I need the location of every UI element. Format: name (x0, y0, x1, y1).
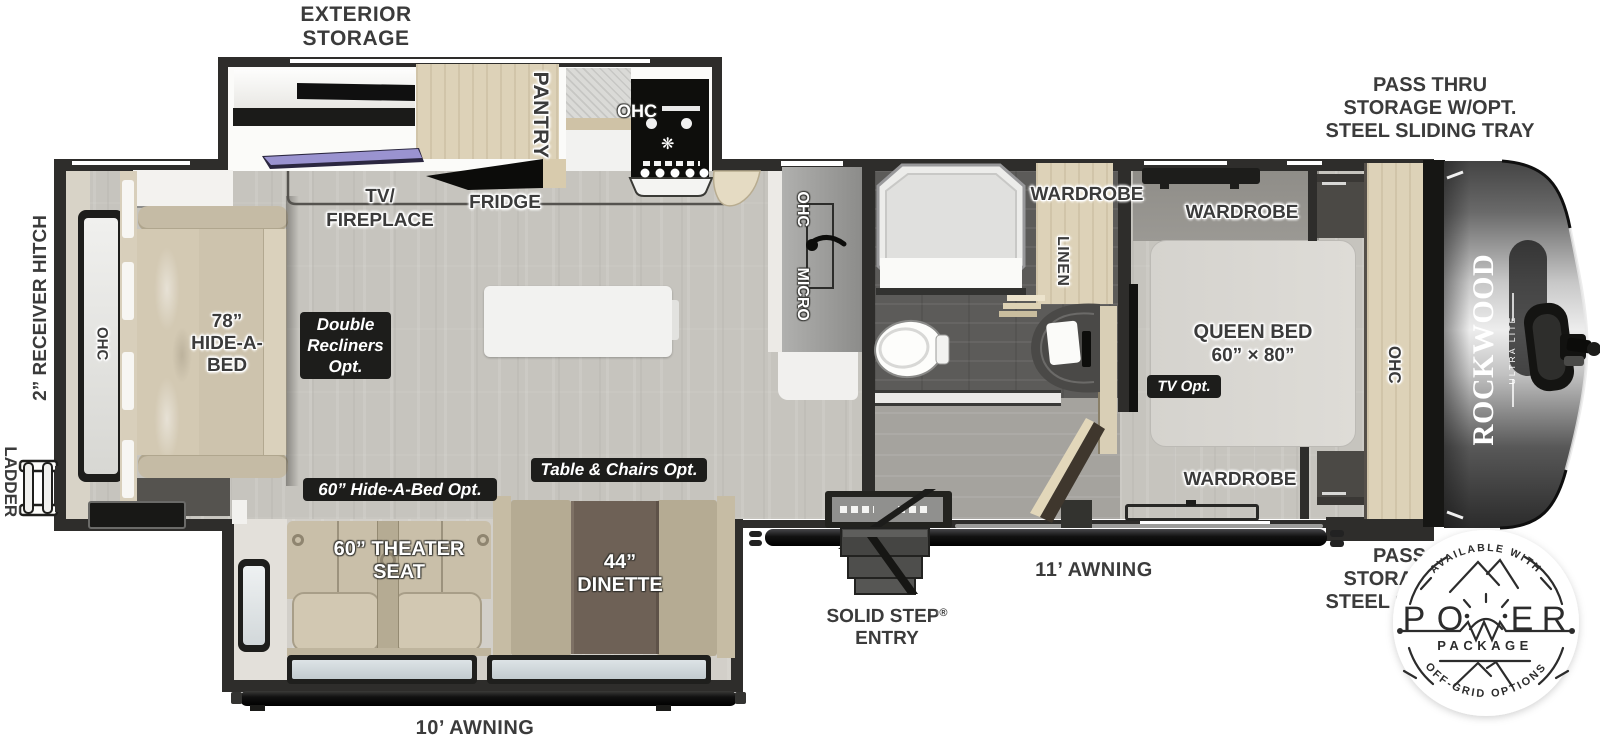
svg-text:ROCKWOOD: ROCKWOOD (1467, 255, 1500, 445)
svg-text:E: E (1511, 600, 1534, 638)
svg-text:O: O (1437, 600, 1463, 638)
svg-text:ULTRA LITE: ULTRA LITE (1507, 315, 1517, 384)
svg-text:R: R (1542, 600, 1567, 638)
svg-text:P: P (1403, 600, 1426, 638)
svg-text:PACKAGE: PACKAGE (1437, 638, 1533, 653)
